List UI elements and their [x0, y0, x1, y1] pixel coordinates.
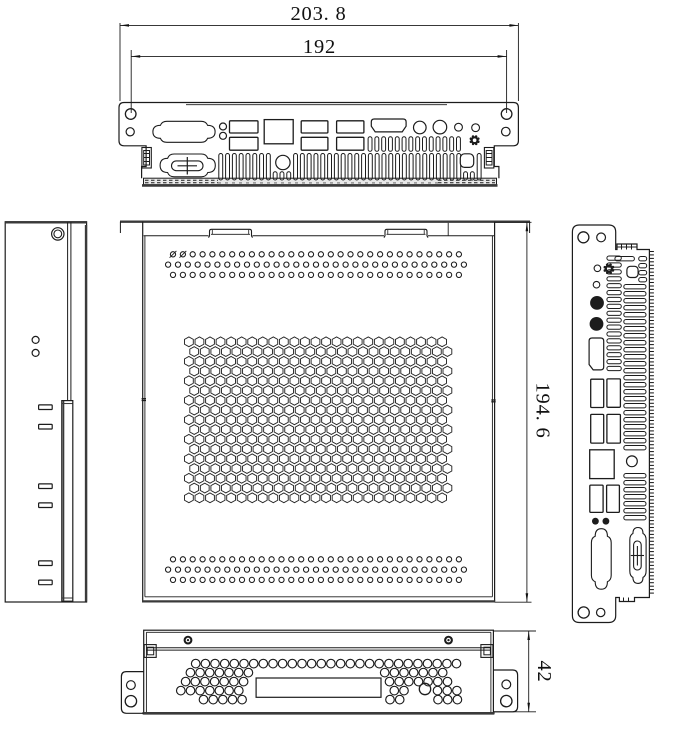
- svg-text:192: 192: [303, 36, 336, 58]
- svg-text:42: 42: [533, 660, 555, 682]
- svg-text:203. 8: 203. 8: [290, 3, 346, 25]
- svg-text:194. 6: 194. 6: [532, 382, 554, 438]
